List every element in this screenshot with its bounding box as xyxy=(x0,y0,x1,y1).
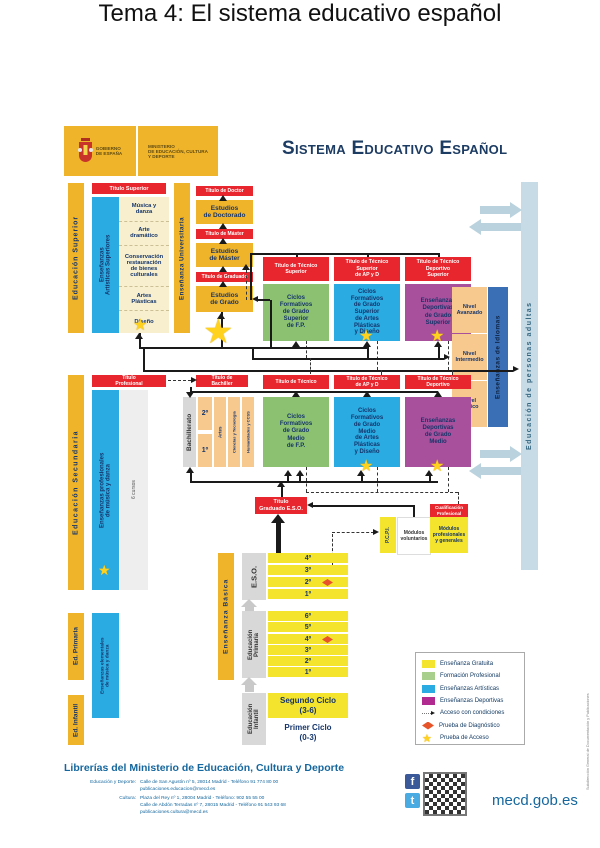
connector xyxy=(296,253,298,257)
connector xyxy=(413,505,415,517)
legend: Enseñanza Gratuita Formación Profesional… xyxy=(415,652,525,745)
bar-pcpi: P.C.P.I. xyxy=(380,517,396,553)
connector xyxy=(143,370,513,372)
box-estudios-grado: Estudios de Grado xyxy=(196,286,253,312)
footer-cultura-address-2: Calle de Abdón Terradas nº 7, 28015 Madr… xyxy=(140,803,286,808)
prueba-diagnostico-diamond-icon xyxy=(422,722,434,730)
label-tecnico-superior: Título de Técnico Superior xyxy=(263,257,329,281)
label-tecnico-deportivo: Título de Técnico Deportivo xyxy=(405,375,471,389)
list-item: Música y danza xyxy=(119,197,169,222)
legend-item: Enseñanza Gratuita xyxy=(422,658,519,670)
facebook-icon[interactable]: f xyxy=(405,774,420,789)
connector xyxy=(287,476,289,481)
bar-ensenanza-basica: Enseñanza Básica xyxy=(218,553,234,680)
arrow-right-icon xyxy=(373,529,379,535)
arrow-left-icon xyxy=(307,502,313,508)
connector-dashed xyxy=(377,341,378,370)
box-ciclos-medio-fp: Ciclos Formativos de Grado Medio de F.P. xyxy=(263,397,329,467)
eso-row-1: 1º xyxy=(268,589,348,599)
legend-item: Enseñanzas Artísticas xyxy=(422,683,519,695)
bar-ensenanza-universitaria: Enseñanza Universitaria xyxy=(174,183,190,333)
ministerio-text: MINISTERIO DE EDUCACIÓN, CULTURA Y DEPOR… xyxy=(148,144,208,159)
connector xyxy=(313,505,413,507)
page-title: Tema 4: El sistema educativo español xyxy=(0,0,600,28)
arrow-up-icon xyxy=(363,391,371,397)
legend-label: Prueba de Acceso xyxy=(440,735,489,741)
arrow-up-icon xyxy=(434,391,442,397)
box-estudios-doctorado: Estudios de Doctorado xyxy=(196,200,253,224)
bar-modalidad-humanidades: Humanidades y CCSS xyxy=(242,397,254,467)
arrow-up-icon xyxy=(219,266,227,272)
label-tecnico: Título de Técnico xyxy=(263,375,329,389)
arrow-up-icon xyxy=(292,391,300,397)
box-primer-ciclo: Primer Ciclo (0-3) xyxy=(268,720,348,745)
legend-label: Formación Profesional xyxy=(440,673,500,679)
connector-dashed xyxy=(246,270,247,300)
connector xyxy=(190,387,192,391)
arrow-up-icon xyxy=(219,195,227,201)
bar-eso: E.S.O. xyxy=(242,553,266,600)
bar-educacion-infantil: Educación Infantil xyxy=(242,693,266,745)
legend-label: Enseñanzas Deportivas xyxy=(440,698,503,704)
prueba-acceso-star-icon: ★ xyxy=(98,563,111,577)
legend-label: Prueba de Diagnóstico xyxy=(439,723,500,729)
box-bachillerato-1: 1º xyxy=(198,434,212,467)
label-tecnico-superior-apd: Título de Técnico Superior de AP y D xyxy=(334,257,400,281)
box-segundo-ciclo: Segundo Ciclo (3-6) xyxy=(268,693,348,718)
list-item: Arte dramático xyxy=(119,222,169,247)
legend-item: Acceso con condiciones xyxy=(422,707,519,719)
label-cualificacion-profesional: Cualificación Profesional xyxy=(430,504,468,517)
connector-dashed xyxy=(306,341,307,358)
connector xyxy=(252,347,254,358)
legend-item: Formación Profesional xyxy=(422,670,519,682)
adultas-arrow xyxy=(480,206,510,214)
connector-dashed xyxy=(168,380,191,381)
legend-label: Enseñanzas Artísticas xyxy=(440,686,499,692)
diagram-title: Sistema Educativo Español xyxy=(282,138,522,160)
label-titulo-superior: Título Superior xyxy=(92,183,166,194)
arrow-right-icon xyxy=(513,366,519,372)
connector-dashed xyxy=(310,358,311,374)
arrow-up-icon xyxy=(186,467,194,473)
connector xyxy=(276,523,281,553)
gray-arrow-stem xyxy=(245,684,254,692)
box-deportivas-medio: Enseñanzas Deportivas de Grado Medio xyxy=(405,397,471,467)
arrow-right-icon xyxy=(191,377,197,383)
connector xyxy=(438,347,440,358)
gobierno-logo-section: GOBIERNO DE ESPAÑA xyxy=(64,126,136,176)
cyan-swatch-icon xyxy=(422,685,435,693)
primaria-row-1: 1º xyxy=(268,667,348,677)
bar-educacion-secundaria: Educación Secundaria xyxy=(68,375,84,590)
arrow-left-icon xyxy=(252,296,258,302)
bar-educacion-adultas: Educación de personas adultas xyxy=(521,182,538,570)
connector xyxy=(250,253,252,300)
arrow-up-icon xyxy=(219,281,227,287)
connector xyxy=(256,299,270,301)
footer-cultura-label: Cultura: xyxy=(64,796,136,801)
box-modulos-profesionales: Módulos profesionales y generales xyxy=(430,517,468,553)
dotted-arrow-icon xyxy=(422,709,435,717)
adultas-arrow-right-icon xyxy=(510,202,522,218)
connector xyxy=(190,481,438,483)
bar-6-cursos: 6 cursos xyxy=(120,390,148,590)
connector-dashed xyxy=(306,492,458,493)
box-ciclos-superior-fp: Ciclos Formativos de Grado Superior de F… xyxy=(263,284,329,341)
yellow-swatch-icon xyxy=(422,660,435,668)
green-swatch-icon xyxy=(422,672,435,680)
connector xyxy=(429,476,431,481)
primaria-row-3: 3º xyxy=(268,645,348,655)
prueba-acceso-star-icon: ★ xyxy=(203,315,233,349)
connector xyxy=(361,476,363,481)
list-item: Artes Plásticas xyxy=(119,287,169,312)
artisticas-list: Música y danza Arte dramático Conservaci… xyxy=(119,197,169,333)
connector-dashed xyxy=(448,467,449,492)
bar-educacion-primaria: Educación Primaria xyxy=(242,611,266,678)
footer-edu-email[interactable]: publicaciones.educacion@mecd.es xyxy=(140,787,215,792)
adultas-arrow xyxy=(481,467,521,475)
box-modulos-voluntarios: Módulos voluntarios xyxy=(397,517,431,555)
connector xyxy=(250,253,438,255)
bar-modalidad-artes: Artes xyxy=(214,397,226,467)
imprint-note: Subdirección General de Documentación y … xyxy=(586,595,594,790)
connector xyxy=(281,487,283,497)
eso-row-3: 3º xyxy=(268,565,348,575)
bar-ensenanzas-artisticas-superiores: Enseñanzas Artísticas Superiores xyxy=(92,197,119,333)
connector xyxy=(438,253,440,257)
bar-bachillerato: Bachillerato xyxy=(183,397,196,467)
connector xyxy=(190,391,438,393)
connector xyxy=(367,347,369,358)
arrow-up-icon xyxy=(242,264,250,270)
bar-ed-infantil: Ed. Infantil xyxy=(68,695,84,745)
box-nivel-avanzado: Nivel Avanzado xyxy=(452,287,487,333)
arrow-down-icon xyxy=(186,392,194,398)
adultas-arrow-left-icon xyxy=(469,219,481,235)
connector-dashed xyxy=(377,467,378,492)
connector xyxy=(270,300,272,347)
primaria-row-5: 5º xyxy=(268,622,348,632)
primaria-row-2: 2º xyxy=(268,656,348,666)
label-tecnico-deportivo-superior: Título de Técnico Deportivo Superior xyxy=(405,257,471,281)
footer-edu-label: Educación y Deporte: xyxy=(64,780,136,785)
arrow-right-icon xyxy=(444,354,450,360)
magenta-swatch-icon xyxy=(422,697,435,705)
connector-dashed xyxy=(332,532,374,533)
legend-label: Enseñanza Gratuita xyxy=(440,661,493,667)
ministerio-logo-section: MINISTERIO DE EDUCACIÓN, CULTURA Y DEPOR… xyxy=(138,126,218,176)
gobierno-text: GOBIERNO DE ESPAÑA xyxy=(96,146,122,156)
legend-item: Prueba de Diagnóstico xyxy=(422,720,519,732)
eso-row-2: 2º xyxy=(268,577,348,587)
footer-cultura-email[interactable]: publicaciones.cultura@mecd.es xyxy=(140,810,208,815)
arrow-up-icon xyxy=(135,333,143,339)
twitter-icon[interactable]: t xyxy=(405,793,420,808)
adultas-arrow xyxy=(480,450,510,458)
box-bachillerato-2: 2º xyxy=(198,397,212,430)
adultas-arrow xyxy=(481,223,521,231)
arrow-up-icon xyxy=(271,514,285,523)
bar-ensenanzas-idiomas: Enseñanzas de Idiomas xyxy=(488,287,508,427)
footer-website[interactable]: mecd.gob.es xyxy=(492,792,578,809)
footer-cultura-address-1: Plaza del Rey nº 1, 28004 Madrid - Teléf… xyxy=(140,796,264,801)
arrow-up-icon xyxy=(219,223,227,229)
footer-edu-address: Calle de San Agustín nº 5, 28014 Madrid … xyxy=(140,780,278,785)
arrow-up-icon xyxy=(219,238,227,244)
adultas-arrow-right-icon xyxy=(510,446,522,462)
footer-title: Librerías del Ministerio de Educación, C… xyxy=(64,762,404,774)
bar-musica-profesional: Enseñanzas profesionales de música y dan… xyxy=(92,390,119,590)
eso-row-4: 4º xyxy=(268,553,348,563)
label-tecnico-apd: Título de Técnico de AP y D xyxy=(334,375,400,389)
coat-of-arms-icon xyxy=(78,138,93,164)
page: Tema 4: El sistema educativo español GOB… xyxy=(0,0,600,848)
ministry-logo: GOBIERNO DE ESPAÑA MINISTERIO DE EDUCACI… xyxy=(64,126,218,176)
connector xyxy=(299,476,301,481)
prueba-acceso-star-icon: ★ xyxy=(422,734,435,742)
legend-item: ★Prueba de Acceso xyxy=(422,732,519,744)
connector xyxy=(367,253,369,257)
box-ciclos-medio-artes: Ciclos Formativos de Grado Medio de Arte… xyxy=(334,397,400,467)
connector-dashed xyxy=(458,492,459,504)
label-titulo-graduado-eso: Título Graduado E.S.O. xyxy=(255,497,307,514)
bar-educacion-superior: Educación Superior xyxy=(68,183,84,333)
bar-modalidad-ciencias: Ciencias y Tecnología xyxy=(228,397,240,467)
prueba-acceso-star-icon: ★ xyxy=(133,318,147,334)
connector-dashed xyxy=(306,467,307,492)
label-titulo-bachiller: Título de Bachiller xyxy=(196,375,248,387)
primaria-row-4: 4º xyxy=(268,634,348,644)
legend-item: Enseñanzas Deportivas xyxy=(422,695,519,707)
label-titulo-profesional: Título Profesional xyxy=(92,375,166,387)
primaria-row-6: 6º xyxy=(268,611,348,621)
list-item: Conservación restauración de bienes cult… xyxy=(119,246,169,286)
qr-code-icon xyxy=(423,772,467,816)
connector xyxy=(190,472,192,481)
box-nivel-intermedio: Nivel Intermedio xyxy=(452,334,487,380)
legend-label: Acceso con condiciones xyxy=(440,710,504,716)
bar-elementales-musica: Enseñanzas elementales de música y danza xyxy=(92,613,119,718)
connector xyxy=(252,358,444,360)
connector xyxy=(143,347,145,370)
bar-ed-primaria: Ed. Primaria xyxy=(68,613,84,680)
